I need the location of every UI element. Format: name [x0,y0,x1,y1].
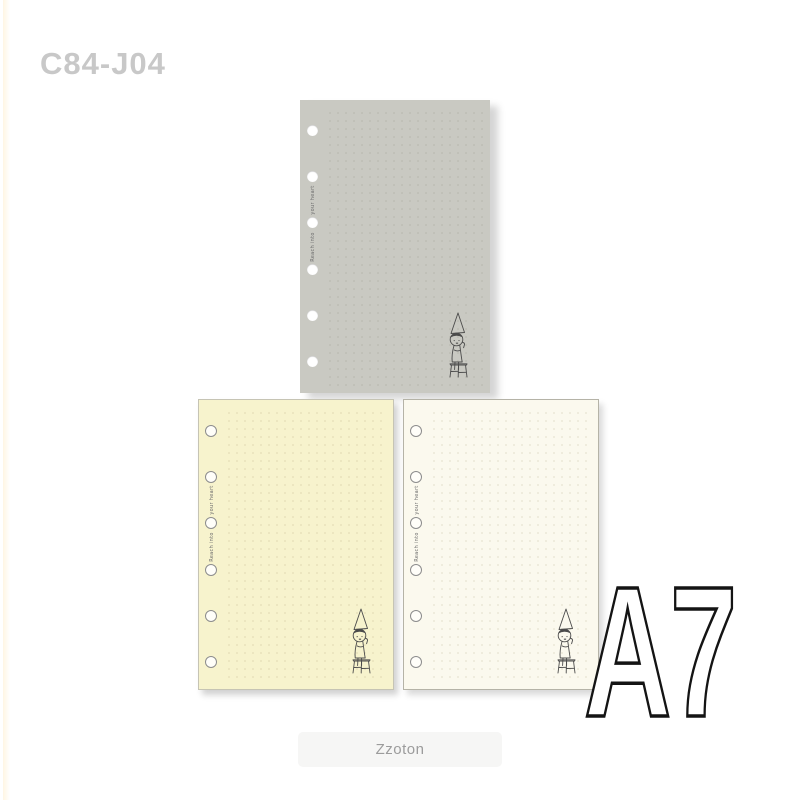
printed-motto-lower: Reach into [413,525,421,569]
girl-cone-hat-stool-illustration-icon [550,608,580,674]
binder-hole [410,656,422,668]
binder-hole [410,425,422,437]
product-code: C84-J04 [40,46,166,82]
left-edge-artifact [3,0,10,800]
girl-cone-hat-stool-illustration-icon [442,312,472,378]
brand-badge: Zzoton [298,732,502,767]
size-label: A7 [584,560,736,746]
binder-hole [307,356,318,367]
binder-hole [205,656,217,668]
paper-sheet-gray: your heart Reach into [300,100,490,393]
binder-hole [307,310,318,321]
printed-motto-lower: Reach into [208,525,216,569]
printed-motto-upper: your heart [208,478,216,522]
girl-cone-hat-stool-illustration-icon [345,608,375,674]
printed-motto-upper: your heart [309,178,317,222]
binder-hole [205,425,217,437]
paper-sheet-ivory: your heart Reach into [403,399,599,690]
binder-hole [307,125,318,136]
printed-motto-upper: your heart [413,478,421,522]
printed-motto-lower: Reach into [309,225,317,269]
brand-badge-label: Zzoton [376,741,425,758]
product-image: C84-J04 your heart Reach into [0,0,800,800]
paper-sheet-cream: your heart Reach into [198,399,394,690]
binder-hole [410,610,422,622]
binder-hole [205,610,217,622]
